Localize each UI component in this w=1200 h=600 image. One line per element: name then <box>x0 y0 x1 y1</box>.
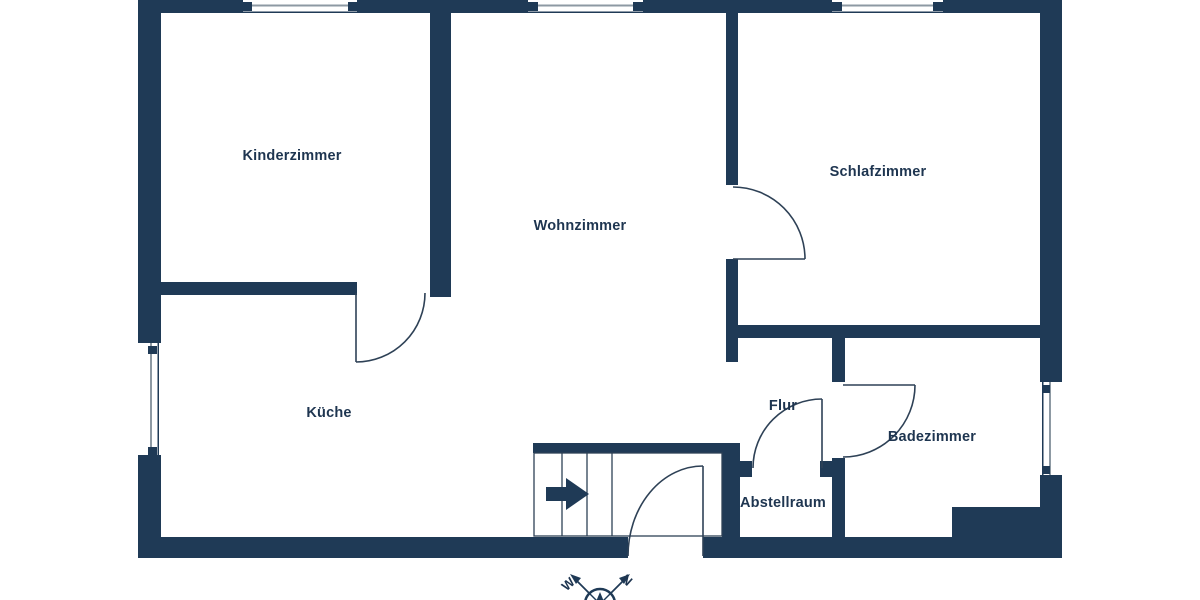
wall-segment <box>138 537 628 558</box>
door-swing-arc <box>356 293 425 362</box>
floor-plan-drawing <box>0 0 1200 600</box>
window-end-cap <box>1042 466 1050 474</box>
door-swing-arc <box>843 385 915 457</box>
window-end-cap <box>832 2 842 11</box>
window-wohnzimmer-top <box>528 2 643 13</box>
window-glass-line <box>832 5 943 7</box>
room-label-badezimmer: Badezimmer <box>888 429 976 445</box>
window-glass-line <box>528 5 643 7</box>
door-schlafzimmer <box>733 187 805 259</box>
wall-kinderzimmer-wohnzimmer <box>430 13 451 297</box>
wall-segment <box>138 0 161 343</box>
room-label-schlafzimmer: Schlafzimmer <box>830 164 927 180</box>
room-label-flur: Flur <box>769 398 797 414</box>
room-label-wohnzimmer: Wohnzimmer <box>534 218 627 234</box>
wall-flur-abstellraum-left-stub <box>740 461 752 477</box>
window-end-cap <box>148 447 157 455</box>
window-end-cap <box>933 2 943 11</box>
window-end-cap <box>528 2 538 11</box>
window-inner-line <box>528 12 643 14</box>
window-end-cap <box>348 2 357 11</box>
wall-segment <box>357 0 528 13</box>
window-schlafzimmer-top <box>832 2 943 13</box>
window-badezimmer-right <box>1042 382 1051 475</box>
window-kueche-left <box>148 343 159 455</box>
wall-wohnzimmer-schlafzimmer-upper <box>726 13 738 185</box>
wall-wohnzimmer-schlafzimmer-lower <box>726 259 738 362</box>
wall-kinderzimmer-kueche <box>161 282 357 295</box>
wall-entrance-abstellraum <box>722 443 740 537</box>
wall-schlafzimmer-badezimmer <box>726 325 1040 338</box>
window-end-cap <box>633 2 643 11</box>
door-badezimmer <box>843 385 915 457</box>
wall-segment <box>703 537 952 558</box>
window-end-cap <box>243 2 252 11</box>
door-kueche <box>356 293 425 362</box>
wall-segment <box>1040 475 1062 558</box>
window-inner-line <box>158 343 160 455</box>
wall-flur-badezimmer-lower <box>832 458 845 537</box>
room-label-kinderzimmer: Kinderzimmer <box>242 148 341 164</box>
room-label-abstellraum: Abstellraum <box>740 495 826 511</box>
window-kinderzimmer-top <box>243 2 357 13</box>
window-inner-line <box>832 12 943 14</box>
room-label-kueche: Küche <box>306 405 351 421</box>
window-end-cap <box>148 346 157 354</box>
wall-flur-badezimmer-upper <box>832 338 845 382</box>
wall-stairs-top <box>533 443 722 453</box>
exterior-wall-left <box>138 0 161 558</box>
window-glass-line <box>150 343 152 455</box>
wall-segment <box>643 0 832 13</box>
floor-plan: Kinderzimmer Wohnzimmer Schlafzimmer Küc… <box>0 0 1200 600</box>
window-inner-line <box>1042 382 1044 475</box>
window-inner-line <box>243 12 357 14</box>
window-end-cap <box>1042 385 1050 393</box>
wall-segment <box>1040 0 1062 382</box>
window-glass-line <box>243 5 357 7</box>
door-swing-arc <box>733 187 805 259</box>
window-glass-line <box>1049 382 1051 475</box>
